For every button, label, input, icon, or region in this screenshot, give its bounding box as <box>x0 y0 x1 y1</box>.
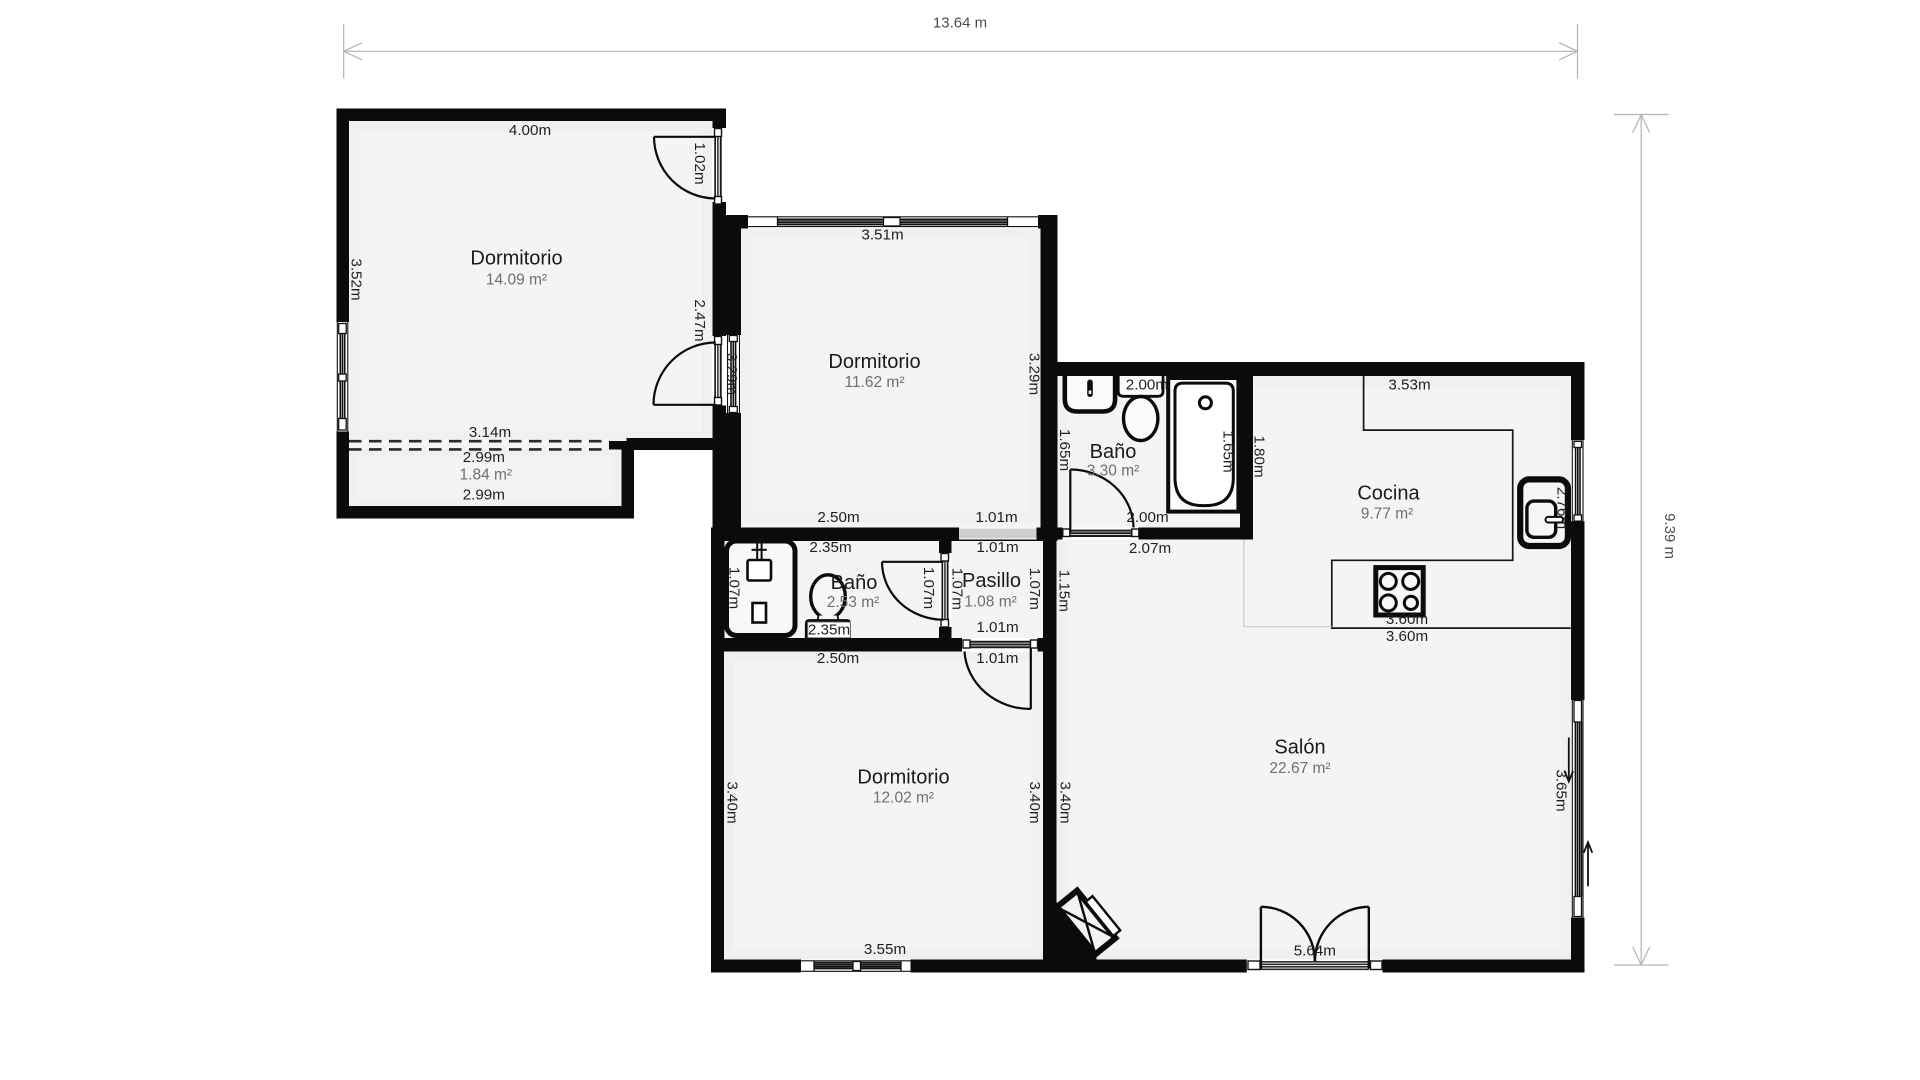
svg-text:3.30 m²: 3.30 m² <box>1087 463 1140 480</box>
svg-text:2.50m: 2.50m <box>817 650 859 667</box>
svg-text:12.02 m²: 12.02 m² <box>873 790 934 807</box>
svg-text:2.99m: 2.99m <box>463 487 505 504</box>
svg-text:3.51m: 3.51m <box>861 227 903 244</box>
svg-text:1.65m: 1.65m <box>1220 430 1237 472</box>
svg-text:Dormitorio: Dormitorio <box>828 351 920 373</box>
svg-text:5.64m: 5.64m <box>1294 942 1336 959</box>
svg-text:2.00m: 2.00m <box>1126 509 1168 526</box>
svg-text:2.50m: 2.50m <box>817 509 859 526</box>
svg-text:1.01m: 1.01m <box>976 539 1018 556</box>
svg-text:11.62 m²: 11.62 m² <box>844 374 904 391</box>
svg-text:1.07m: 1.07m <box>949 568 966 610</box>
svg-text:1.01m: 1.01m <box>976 650 1018 667</box>
svg-text:13.64 m: 13.64 m <box>933 15 987 32</box>
svg-text:14.09 m²: 14.09 m² <box>486 272 547 289</box>
svg-text:Cocina: Cocina <box>1357 483 1420 505</box>
svg-text:1.07m: 1.07m <box>1026 568 1043 610</box>
svg-text:1.15m: 1.15m <box>1056 570 1073 612</box>
svg-text:Salón: Salón <box>1274 736 1325 758</box>
svg-text:3.40m: 3.40m <box>723 781 740 823</box>
svg-text:1.80m: 1.80m <box>1251 435 1268 477</box>
svg-text:2.99m: 2.99m <box>463 449 505 466</box>
svg-text:1.65m: 1.65m <box>1056 429 1073 471</box>
svg-text:3.40m: 3.40m <box>1026 781 1043 823</box>
svg-text:2.47m: 2.47m <box>691 299 708 341</box>
svg-text:3.29m: 3.29m <box>1026 353 1043 395</box>
svg-text:1.84 m²: 1.84 m² <box>460 467 513 484</box>
svg-text:3.29m: 3.29m <box>723 353 740 395</box>
svg-text:2.07m: 2.07m <box>1129 540 1171 557</box>
svg-text:22.67 m²: 22.67 m² <box>1269 760 1330 777</box>
svg-text:3.60m: 3.60m <box>1386 611 1428 628</box>
svg-text:2.35m: 2.35m <box>809 539 851 556</box>
svg-text:2.00m: 2.00m <box>1126 376 1168 393</box>
svg-text:3.65m: 3.65m <box>1553 769 1570 811</box>
svg-text:1.01m: 1.01m <box>975 509 1017 526</box>
svg-text:3.40m: 3.40m <box>1057 781 1074 823</box>
svg-text:9.39 m: 9.39 m <box>1661 513 1678 559</box>
svg-text:1.07m: 1.07m <box>725 567 742 609</box>
svg-text:1.07m: 1.07m <box>920 567 937 609</box>
svg-text:3.52m: 3.52m <box>347 258 364 300</box>
svg-text:Pasillo: Pasillo <box>962 570 1021 592</box>
svg-text:4.00m: 4.00m <box>509 122 551 139</box>
svg-text:9.77 m²: 9.77 m² <box>1361 506 1414 523</box>
svg-text:2.53 m²: 2.53 m² <box>827 594 880 611</box>
svg-text:1.08 m²: 1.08 m² <box>964 594 1017 611</box>
svg-text:Dormitorio: Dormitorio <box>470 248 562 270</box>
svg-text:Baño: Baño <box>1090 441 1137 463</box>
svg-text:1.01m: 1.01m <box>976 619 1018 636</box>
svg-text:Dormitorio: Dormitorio <box>857 766 949 788</box>
svg-text:3.14m: 3.14m <box>469 424 511 441</box>
svg-text:1.02m: 1.02m <box>691 142 708 184</box>
svg-text:3.53m: 3.53m <box>1388 376 1430 393</box>
svg-text:Baño: Baño <box>831 572 878 594</box>
svg-text:2.35m: 2.35m <box>808 622 850 639</box>
svg-text:3.60m: 3.60m <box>1386 628 1428 645</box>
svg-text:3.55m: 3.55m <box>864 941 906 958</box>
